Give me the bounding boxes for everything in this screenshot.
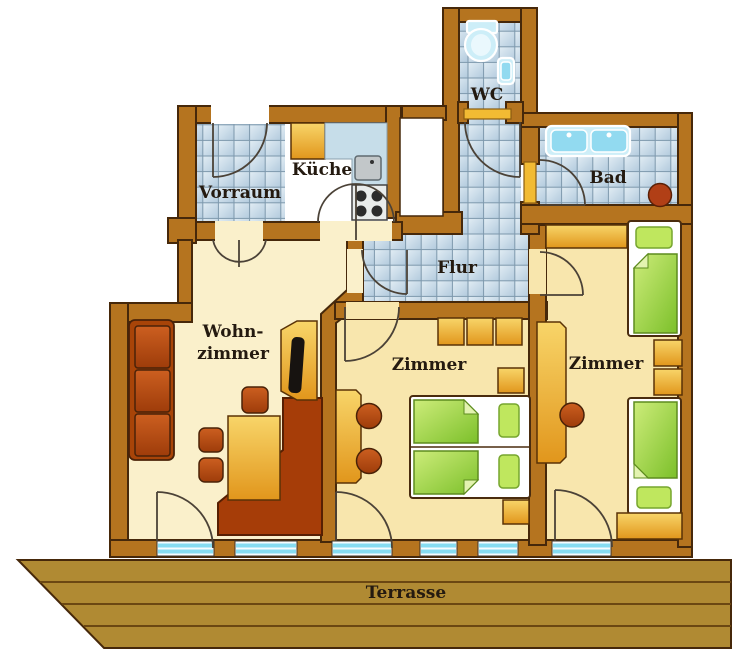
- chair: [242, 387, 268, 413]
- chair: [560, 403, 584, 427]
- entrance-opening: [211, 103, 269, 124]
- desk: [336, 390, 361, 483]
- chair: [357, 404, 382, 429]
- pillow: [636, 227, 672, 248]
- wardrobe-unit: [467, 318, 493, 345]
- faucet: [567, 133, 572, 138]
- room-label-zimmer-rechts: Zimmer: [569, 354, 645, 374]
- room-label-wohnzimmer: Wohn-: [202, 322, 264, 342]
- wardrobe-unit: [438, 318, 464, 345]
- wc-sink-basin: [501, 62, 511, 80]
- sofa-cushion: [135, 414, 170, 456]
- wall-segment: [178, 240, 192, 310]
- room-label-zimmer-mitte: Zimmer: [392, 355, 468, 375]
- chair: [199, 428, 223, 452]
- door-gap: [529, 249, 546, 294]
- room-label-wc: WC: [470, 85, 504, 105]
- room-label-kueche: Küche: [292, 160, 352, 180]
- nightstand: [654, 369, 682, 395]
- bad-door-threshold: [524, 162, 536, 203]
- pillow: [499, 455, 519, 488]
- window: [552, 541, 611, 556]
- window: [235, 541, 297, 556]
- burner: [356, 206, 367, 217]
- wardrobe-unit: [496, 318, 522, 345]
- room-label-bad: Bad: [589, 168, 626, 188]
- wall-segment: [110, 303, 128, 548]
- kitchen-sink: [355, 156, 381, 180]
- burner: [356, 191, 367, 202]
- wardrobe: [546, 225, 627, 248]
- window: [157, 541, 214, 556]
- window: [478, 541, 518, 556]
- room-label-wohnzimmer: zimmer: [197, 344, 270, 364]
- pillow: [637, 487, 671, 508]
- nightstand: [654, 340, 682, 366]
- kitchen-cabinet: [291, 123, 325, 159]
- door-gap: [346, 302, 399, 319]
- window: [420, 541, 457, 556]
- faucet: [370, 160, 374, 164]
- duvet: [634, 402, 677, 478]
- desk: [537, 322, 566, 463]
- floor-plan: Terrasse: [0, 0, 751, 660]
- wall-segment: [521, 122, 539, 164]
- coffee-table: [228, 416, 280, 500]
- door-gap: [215, 221, 263, 241]
- room-label-flur: Flur: [437, 258, 478, 278]
- toilet-bowl: [471, 34, 491, 56]
- faucet: [607, 133, 612, 138]
- burner: [372, 206, 383, 217]
- door-gap: [347, 249, 363, 293]
- chair: [357, 449, 382, 474]
- stool: [649, 184, 672, 207]
- pillow: [499, 404, 519, 437]
- nightstand: [498, 368, 524, 393]
- chair: [199, 458, 223, 482]
- window: [332, 541, 392, 556]
- cabinet: [617, 513, 682, 539]
- floor-vorraum: [196, 123, 285, 222]
- room-label-vorraum: Vorraum: [198, 183, 281, 203]
- sofa-cushion: [135, 370, 170, 412]
- sofa-cushion: [135, 326, 170, 368]
- light-shaft-void: [400, 118, 443, 216]
- room-label-terrasse: Terrasse: [366, 583, 447, 603]
- terrace: Terrasse: [18, 560, 731, 648]
- nightstand: [503, 500, 529, 524]
- wc-door-threshold: [464, 109, 511, 119]
